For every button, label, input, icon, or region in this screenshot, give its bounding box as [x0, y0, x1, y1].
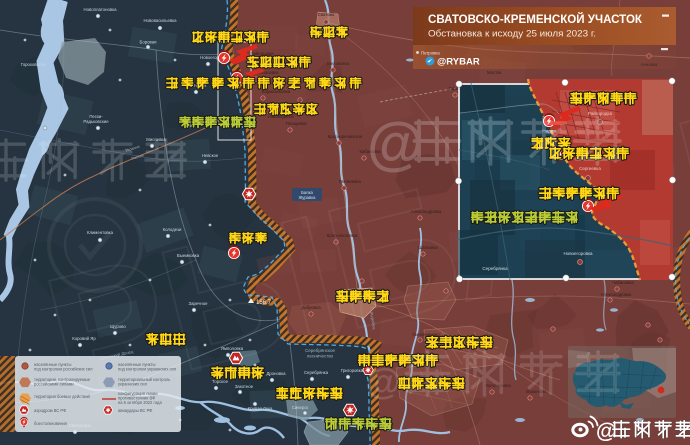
- svg-text:авиаудары ВС РФ: авиаудары ВС РФ: [118, 408, 152, 413]
- svg-text:Гороховатка: Гороховатка: [21, 62, 46, 67]
- svg-text:Боровая: Боровая: [140, 40, 158, 45]
- svg-text:СВАТОВСКО-КРЕМЕНСКОЙ УЧАСТОК: СВАТОВСКО-КРЕМЕНСКОЙ УЧАСТОК: [428, 11, 642, 26]
- svg-text:Площанка: Площанка: [286, 121, 307, 126]
- svg-text:Сиверск: Сиверск: [292, 405, 309, 410]
- svg-text:Новоплатоновка: Новоплатоновка: [84, 7, 118, 12]
- svg-text:Новоегоровка: Новоегоровка: [563, 251, 593, 256]
- svg-text:Красноречанское: Красноречанское: [328, 134, 363, 139]
- svg-text:Меловатка: Меловатка: [327, 61, 349, 66]
- svg-text:территория боевых действий: территория боевых действий: [34, 394, 90, 399]
- svg-text:Обстановка к исходу 25 июля 20: Обстановка к исходу 25 июля 2023 г.: [428, 29, 596, 39]
- svg-text:Кривая Лука: Кривая Лука: [248, 406, 273, 411]
- svg-text:@: @: [367, 111, 424, 176]
- svg-text:Серебрянка: Серебрянка: [482, 266, 508, 271]
- svg-text:Сватово: Сватово: [318, 12, 335, 17]
- svg-text:@RYBAR: @RYBAR: [437, 57, 480, 68]
- svg-text:Райгородка: Райгородка: [588, 110, 613, 116]
- svg-text:Мостки: Мостки: [487, 70, 502, 75]
- svg-text:Нововасильевка: Нововасильевка: [143, 18, 177, 23]
- svg-text:Вороново: Вороново: [526, 389, 546, 394]
- svg-text:Невское: Невское: [202, 153, 219, 158]
- svg-text:аэродром ВС РФ: аэродром ВС РФ: [34, 408, 66, 413]
- svg-text:Петровка: Петровка: [421, 51, 440, 56]
- svg-text:@: @: [366, 361, 401, 402]
- svg-text:боестолкновения: боестолкновения: [34, 421, 67, 426]
- svg-text:Радьковские: Радьковские: [83, 119, 109, 124]
- svg-text:Сергеевка: Сергеевка: [579, 166, 601, 171]
